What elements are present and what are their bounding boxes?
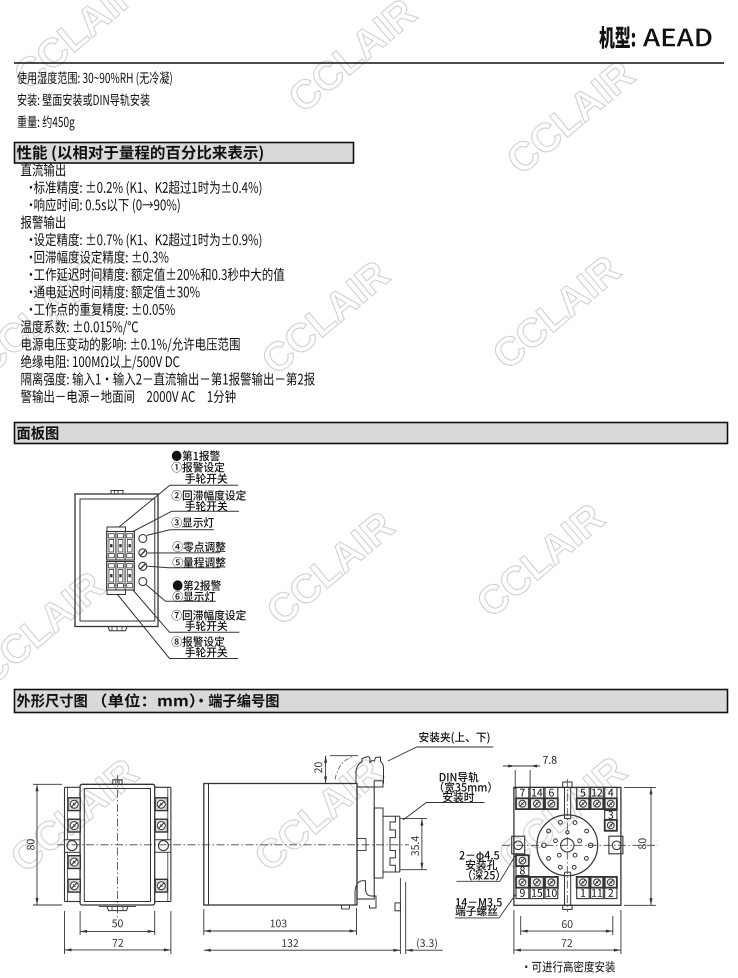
svg-text:CCLAIR: CCLAIR xyxy=(0,252,111,383)
svg-text:CCLAIR: CCLAIR xyxy=(6,0,150,98)
svg-text:CCLAIR: CCLAIR xyxy=(247,749,391,880)
svg-text:CCLAIR: CCLAIR xyxy=(491,748,635,879)
svg-text:CCLAIR: CCLAIR xyxy=(0,563,113,694)
svg-text:CCLAIR: CCLAIR xyxy=(281,0,425,121)
svg-text:CCLAIR: CCLAIR xyxy=(499,52,643,183)
svg-text:CCLAIR: CCLAIR xyxy=(259,503,403,634)
svg-text:CCLAIR: CCLAIR xyxy=(485,247,629,378)
svg-text:CCLAIR: CCLAIR xyxy=(469,495,613,626)
